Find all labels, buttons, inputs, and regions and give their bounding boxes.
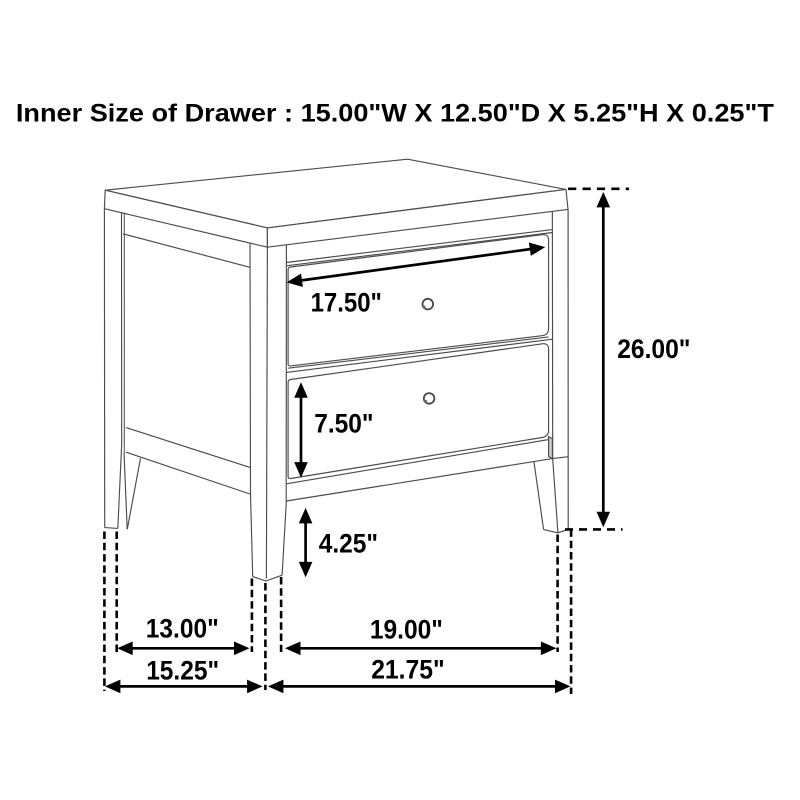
svg-text:17.50": 17.50": [311, 287, 382, 317]
svg-text:26.00": 26.00": [617, 334, 690, 364]
svg-text:15.25": 15.25": [146, 656, 219, 686]
svg-text:4.25": 4.25": [319, 528, 378, 558]
svg-text:13.00": 13.00": [146, 614, 219, 644]
svg-text:21.75": 21.75": [371, 655, 445, 685]
svg-text:7.50": 7.50": [314, 408, 373, 438]
svg-text:Inner Size of Drawer : 15.00"W: Inner Size of Drawer : 15.00"W X 12.50"D…: [16, 100, 774, 128]
svg-text:19.00": 19.00": [370, 615, 443, 645]
